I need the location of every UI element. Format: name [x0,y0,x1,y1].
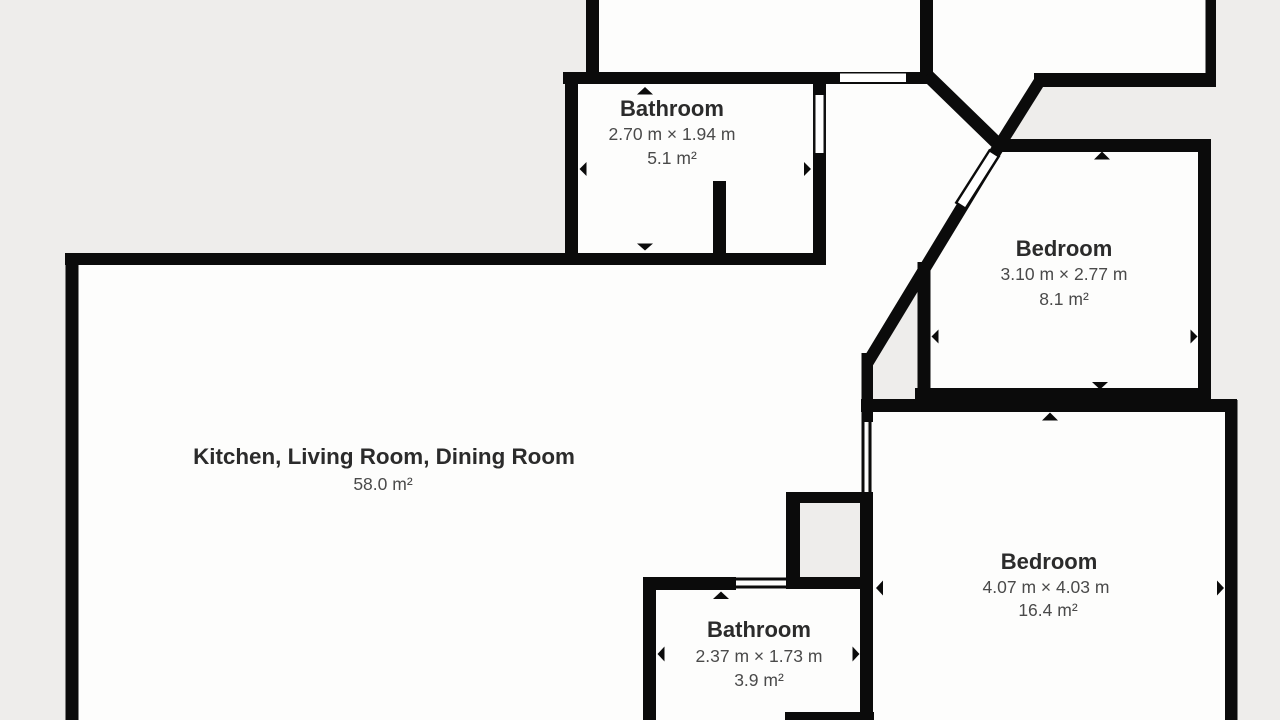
svg-text:Bathroom: Bathroom [620,96,724,121]
svg-text:2.37 m × 1.73 m: 2.37 m × 1.73 m [696,646,823,666]
svg-text:2.70 m × 1.94 m: 2.70 m × 1.94 m [609,124,736,144]
svg-text:8.1 m²: 8.1 m² [1039,289,1089,309]
svg-text:16.4 m²: 16.4 m² [1018,600,1077,620]
svg-text:Kitchen, Living Room, Dining R: Kitchen, Living Room, Dining Room [193,444,575,469]
svg-text:5.1 m²: 5.1 m² [647,148,697,168]
svg-text:Bedroom: Bedroom [1001,549,1098,574]
svg-text:Bathroom: Bathroom [707,617,811,642]
svg-text:4.07 m × 4.03 m: 4.07 m × 4.03 m [983,577,1110,597]
svg-text:58.0 m²: 58.0 m² [353,474,412,494]
svg-text:Bedroom: Bedroom [1016,236,1113,261]
svg-text:3.9 m²: 3.9 m² [734,670,784,690]
svg-text:3.10 m × 2.77 m: 3.10 m × 2.77 m [1001,264,1128,284]
